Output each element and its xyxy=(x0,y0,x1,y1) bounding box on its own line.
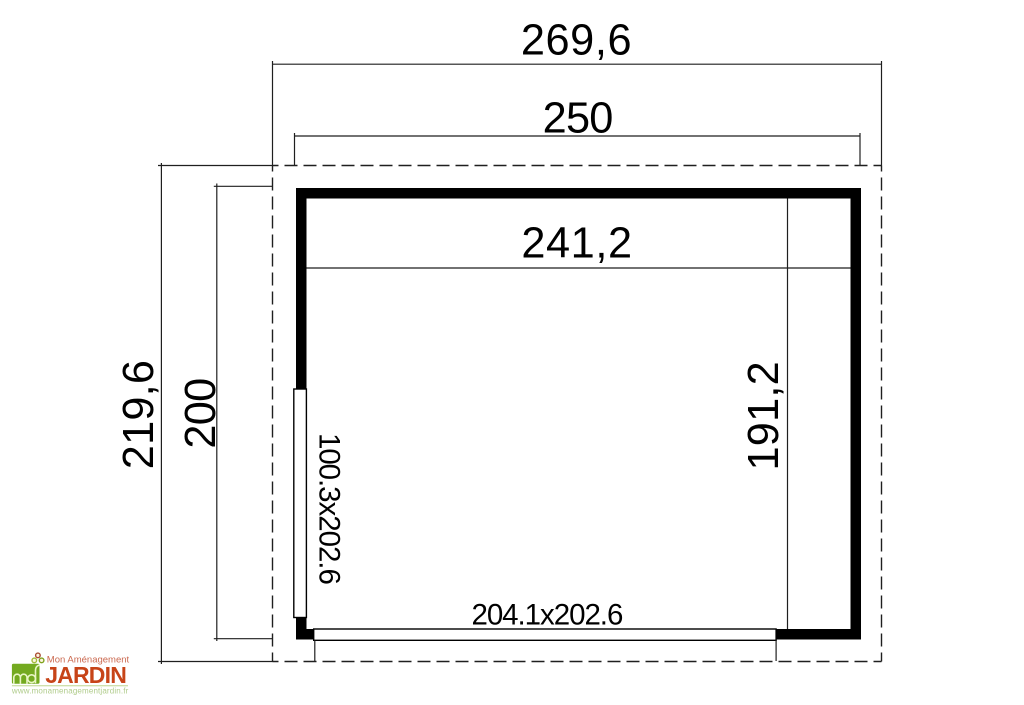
svg-text:200: 200 xyxy=(177,378,225,448)
svg-text:204.1x202.6: 204.1x202.6 xyxy=(471,598,622,631)
svg-text:241,2: 241,2 xyxy=(521,220,632,268)
svg-text:269,6: 269,6 xyxy=(521,17,632,65)
svg-text:JARDIN: JARDIN xyxy=(45,662,126,688)
svg-text:100.3x202.6: 100.3x202.6 xyxy=(312,433,345,584)
svg-text:www.monamenagementjardin.fr: www.monamenagementjardin.fr xyxy=(11,687,129,696)
svg-text:250: 250 xyxy=(543,94,613,142)
svg-text:219,6: 219,6 xyxy=(115,360,163,469)
svg-text:191,2: 191,2 xyxy=(740,361,788,470)
